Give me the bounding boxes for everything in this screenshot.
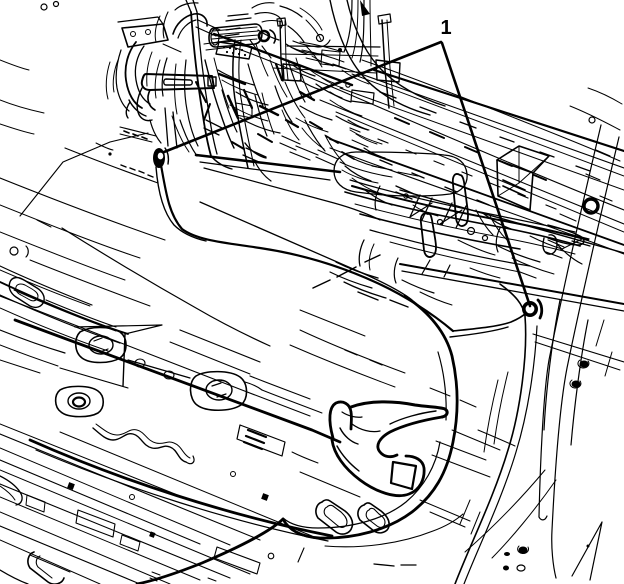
svg-text:1: 1 [440,17,451,39]
